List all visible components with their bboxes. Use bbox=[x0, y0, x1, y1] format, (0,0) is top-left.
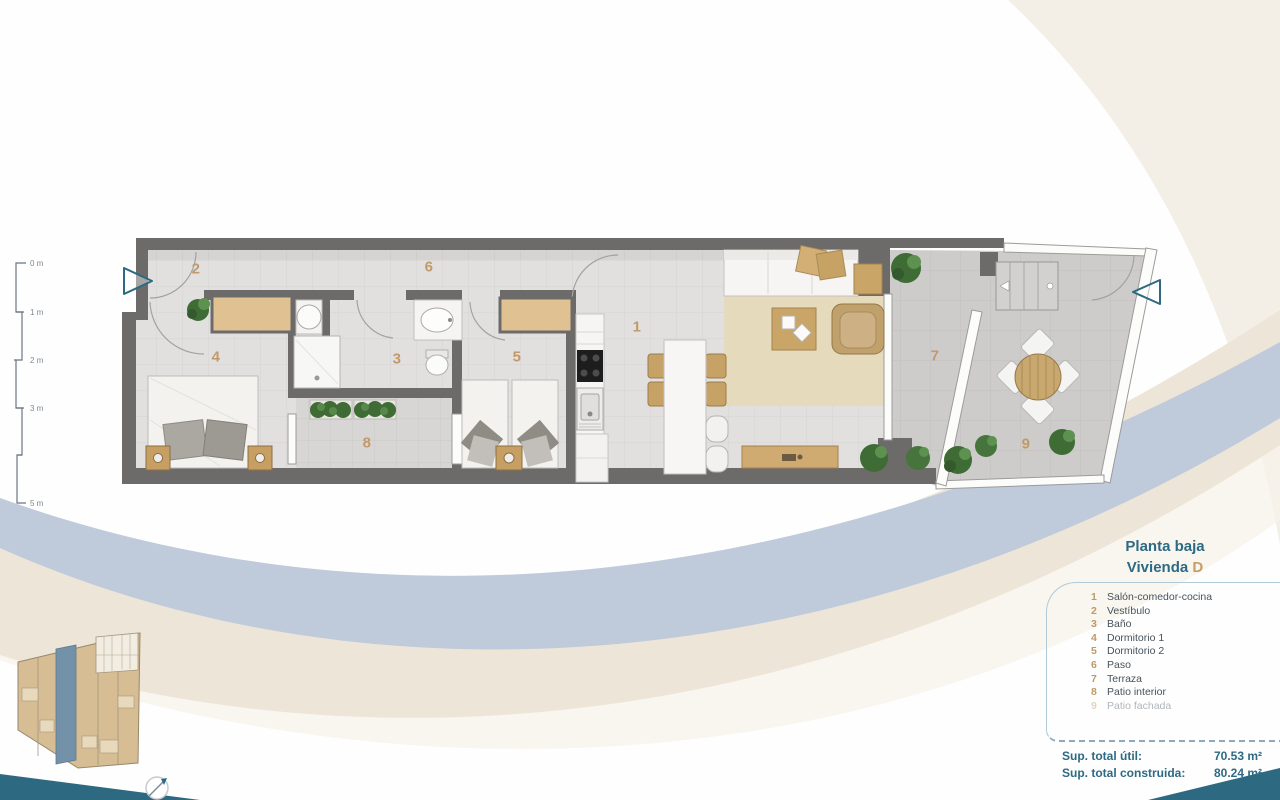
chair bbox=[706, 354, 726, 378]
plant-icon bbox=[906, 446, 930, 470]
floorplan-sheet: { "legend": { "title_line1": "Planta baj… bbox=[0, 0, 1280, 800]
corner-wedge-left bbox=[0, 774, 200, 800]
scale-tick-label: 5 m bbox=[30, 499, 43, 508]
toilet-icon bbox=[426, 355, 448, 375]
scale-tick-label: 0 m bbox=[30, 259, 43, 268]
unit-title: Vivienda D bbox=[1062, 557, 1268, 578]
plant-icon bbox=[975, 435, 997, 457]
scale-tick-label: 1 m bbox=[30, 308, 43, 317]
stool bbox=[706, 416, 728, 442]
stairs bbox=[996, 262, 1058, 310]
legend-item: 5Dormitorio 2 bbox=[1091, 645, 1280, 659]
room-label-4: 4 bbox=[212, 349, 221, 366]
room-label-7: 7 bbox=[931, 348, 940, 365]
floor-title: Planta baja bbox=[1062, 536, 1268, 557]
plant-icon bbox=[891, 253, 921, 283]
legend-item: 3Baño bbox=[1091, 618, 1280, 632]
legend-item: 9Patio fachada bbox=[1091, 700, 1280, 714]
scale-ruler bbox=[14, 263, 26, 503]
legend-item: 8Patio interior bbox=[1091, 686, 1280, 700]
room-label-2: 2 bbox=[192, 261, 201, 278]
plant-icon bbox=[944, 446, 972, 474]
legend-item: 2Vestíbulo bbox=[1091, 605, 1280, 619]
stool bbox=[706, 446, 728, 472]
room-label-6: 6 bbox=[425, 259, 434, 276]
area-totals: Sup. total útil:70.53 m² Sup. total cons… bbox=[1062, 748, 1262, 782]
legend-item: 1Salón-comedor-cocina bbox=[1091, 591, 1280, 605]
north-compass-icon bbox=[146, 777, 168, 799]
highlighted-unit bbox=[56, 645, 76, 764]
throw-pillow bbox=[816, 250, 846, 280]
room-label-8: 8 bbox=[363, 435, 372, 452]
kitchen bbox=[576, 314, 608, 482]
floor-plan bbox=[122, 238, 1160, 489]
pillow bbox=[203, 420, 247, 461]
scale-tick-label: 2 m bbox=[30, 356, 43, 365]
double-bed bbox=[146, 376, 272, 470]
room-label-1: 1 bbox=[633, 319, 642, 336]
legend-item: 4Dormitorio 1 bbox=[1091, 632, 1280, 646]
wardrobe bbox=[212, 296, 292, 332]
room-label-5: 5 bbox=[513, 349, 522, 366]
chair bbox=[706, 382, 726, 406]
total-construida: Sup. total construida:80.24 m² bbox=[1062, 765, 1262, 782]
scale-tick-label: 3 m bbox=[30, 404, 43, 413]
unit-letter: D bbox=[1192, 559, 1203, 576]
side-table bbox=[854, 264, 882, 294]
room-label-3: 3 bbox=[393, 351, 402, 368]
total-util: Sup. total útil:70.53 m² bbox=[1062, 748, 1262, 765]
legend-item: 6Paso bbox=[1091, 659, 1280, 673]
cooktop-icon bbox=[577, 350, 603, 382]
room-label-9: 9 bbox=[1022, 436, 1031, 453]
legend-item: 7Terraza bbox=[1091, 673, 1280, 687]
wardrobe bbox=[500, 298, 572, 332]
plant-icon bbox=[860, 444, 888, 472]
legend-panel: 1Salón-comedor-cocina 2Vestíbulo 3Baño 4… bbox=[1046, 582, 1280, 742]
legend-title: Planta baja Vivienda D bbox=[1062, 536, 1268, 578]
dining-table bbox=[664, 340, 706, 474]
washbasin-icon bbox=[297, 305, 321, 329]
plant-icon bbox=[1049, 429, 1075, 455]
